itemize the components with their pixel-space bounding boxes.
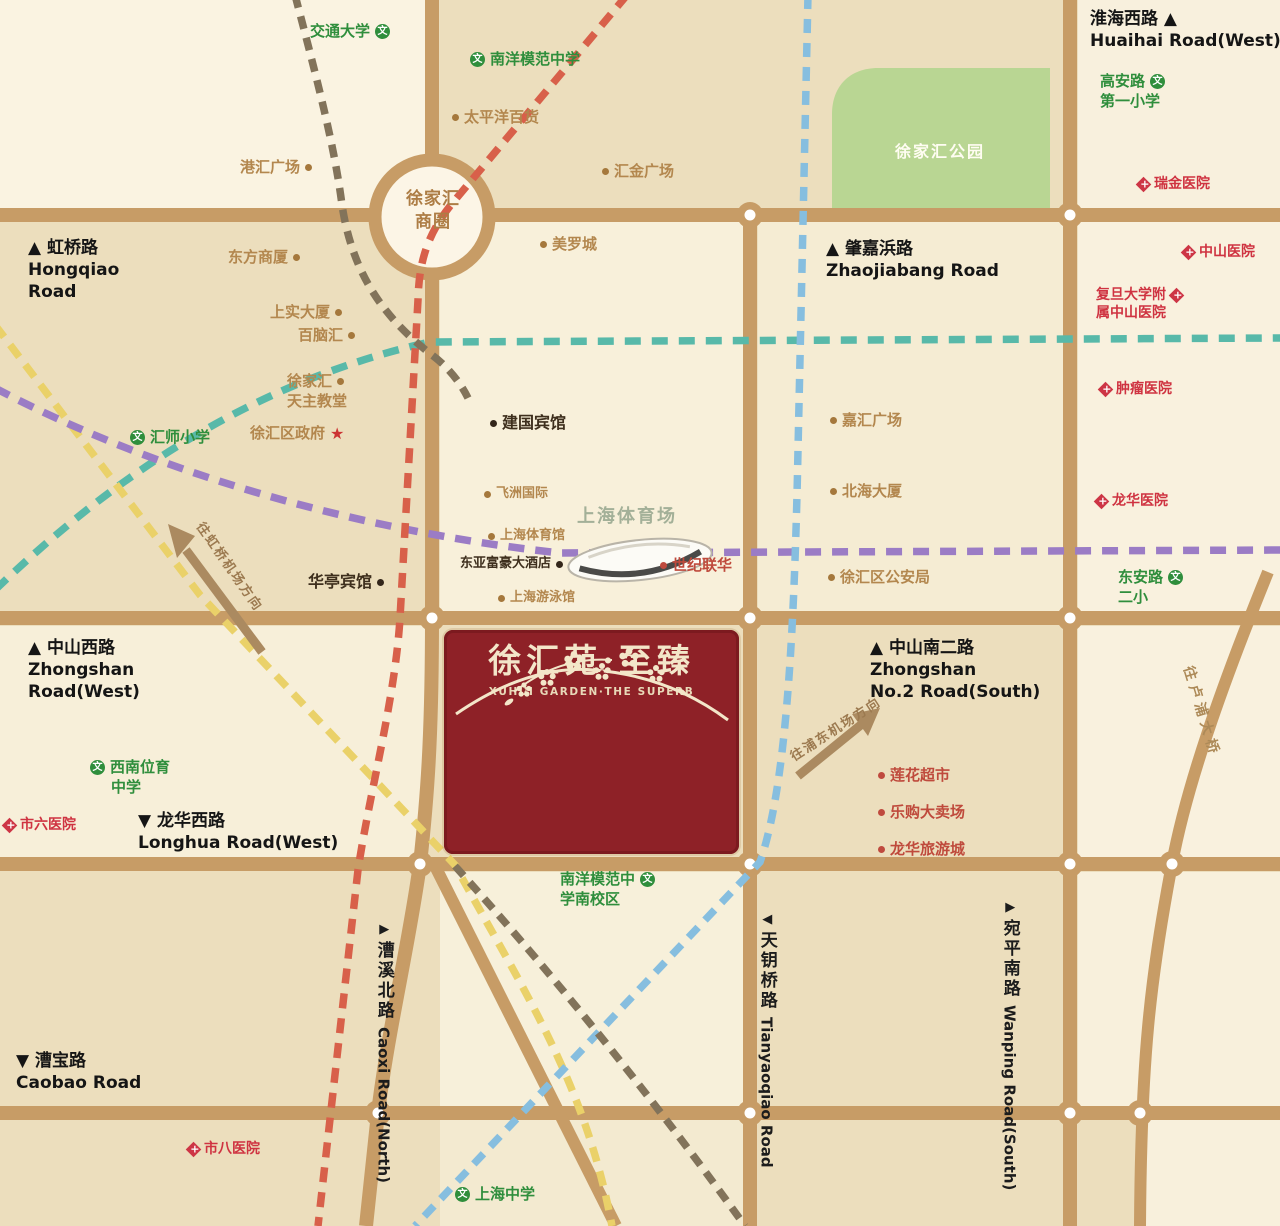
label-text: No.2 Road(South) [870,681,1040,703]
location-map: 徐家汇商圈 徐家汇公园 徐汇苑·至臻 X [0,0,1280,1226]
road-name-cn: 宛平南路 [1000,915,1020,999]
poi-zhongshan-hospital: +中山医院 [1183,243,1255,261]
direction-to-pudong-airport: 往浦东机场方向 [788,695,885,766]
school-icon: 文 [640,872,655,887]
poi-gaoan-road-first-primary: 高安路文第一小学 [1100,72,1165,111]
poi-shanghai-high-school: 文上海中学 [455,1185,535,1205]
label-text: 港汇广场 [240,158,300,178]
label-text: 太平洋百货 [464,108,539,128]
road-caoxi-north: ▶漕溪北路Caoxi Road(North) [374,922,393,1183]
label-text: Road [28,281,76,303]
poi-fudan-zhongshan-hospital: 复旦大学附+属中山医院 [1096,286,1182,322]
label-text: 市八医院 [204,1140,260,1158]
label-text: 中山医院 [1199,243,1255,261]
poi-dot-icon [377,579,384,586]
label-text: 中学 [111,778,141,798]
poi-dot-icon [602,168,609,175]
label-text: ▲ 肇嘉浜路 [826,238,913,260]
poi-cancer-hospital: +肿瘤医院 [1100,380,1172,398]
hospital-icon: + [2,817,18,833]
poi-jianguo-hotel: 建国宾馆 [490,413,566,434]
poi-dongfang-shopping-center: 东方商厦 [228,248,300,268]
label-text: 龙华医院 [1112,492,1168,510]
label-text: 天主教堂 [287,392,347,412]
label-text: 学南校区 [560,890,620,910]
poi-xinanweiyu-school: 文西南位育中学 [90,758,170,797]
label-text: 莲花超市 [890,766,950,786]
direction-to-lupu-bridge: 往卢浦大桥 [1179,664,1224,760]
road-direction-triangle-icon: ▶ [1003,900,1018,915]
label-text: 龙华旅游城 [890,840,965,860]
label-text: 汇金广场 [614,162,674,182]
label-text: 高安路 [1100,72,1145,92]
road-direction-triangle-icon: ▶ [377,922,392,937]
label-text: 华亭宾馆 [308,572,372,593]
road-tianyaoqiao: ◀天钥桥路Tianyaoqiao Road [757,912,776,1168]
label-text: 西南位育 [110,758,170,778]
road-hongqiao: ▲ 虹桥路HongqiaoRoad [28,237,119,303]
label-text: 交通大学 [310,22,370,42]
poi-nanyang-model-south-campus: 南洋模范中文学南校区 [560,870,655,909]
poi-xuhui-police-bureau: 徐汇区公安局 [828,568,930,588]
label-text: 建国宾馆 [502,413,566,434]
map-labels-layer: 交通大学文文南洋模范中学太平洋百货港汇广场汇金广场淮海西路 ▲Huaihai R… [0,0,1280,1226]
poi-beihai-tower: 北海大厦 [830,482,902,502]
poi-dot-icon [830,417,837,424]
poi-dot-icon [660,562,667,569]
road-caobao: ▼ 漕宝路Caobao Road [16,1050,141,1094]
poi-dot-icon [878,809,885,816]
hospital-icon: + [1098,381,1114,397]
label-text: 徐汇区公安局 [840,568,930,588]
label-text: ▲ 中山西路 [28,637,115,659]
road-name-cn: 天钥桥路 [757,927,777,1011]
label-text: Zhaojiabang Road [826,260,999,282]
poi-huating-hotel: 华亭宾馆 [308,572,384,593]
direction-to-hongqiao-airport: 往虹桥机场方向 [191,520,265,616]
label-text: Hongqiao [28,259,119,281]
poi-huishi-primary: 文汇师小学 [130,428,210,448]
label-text: ▲ 中山南二路 [870,637,974,659]
poi-dot-icon [488,533,495,540]
label-text: 南洋模范中学 [490,50,580,70]
label-text: 淮海西路 ▲ [1090,8,1177,30]
label-text: 北海大厦 [842,482,902,502]
label-text: 东安路 [1118,568,1163,588]
label-text: Road(West) [28,681,140,703]
hospital-icon: + [1181,244,1197,260]
poi-century-lianhua: 世纪联华 [660,556,732,576]
hospital-icon: + [1169,287,1185,303]
poi-dongan-road-second-primary: 东安路文二小 [1118,568,1183,607]
poi-bainaohui: 百脑汇 [298,326,355,346]
label-text: Longhua Road(West) [138,832,338,854]
poi-nanyang-model-school: 文南洋模范中学 [470,50,580,70]
poi-shanghai-natatorium: 上海游泳馆 [498,590,575,607]
poi-dot-icon [293,254,300,261]
poi-xujiahui-cathedral: 徐家汇天主教堂 [287,372,347,411]
label-text: 南洋模范中 [560,870,635,890]
label-text: 市六医院 [20,816,76,834]
label-text: ▼ 漕宝路 [16,1050,86,1072]
poi-dot-icon [348,332,355,339]
label-text: 汇师小学 [150,428,210,448]
road-direction-triangle-icon: ◀ [760,912,775,927]
label-text: ▼ 龙华西路 [138,810,225,832]
government-star-icon: ★ [330,426,344,442]
poi-shangshi-tower: 上实大厦 [270,303,342,323]
label-text: 上实大厦 [270,303,330,323]
school-icon: 文 [375,24,390,39]
hospital-icon: + [186,1141,202,1157]
label-text: 东亚富豪大酒店 [460,556,551,573]
poi-dot-icon [878,846,885,853]
school-icon: 文 [455,1187,470,1202]
label-text: 世纪联华 [672,556,732,576]
label-text: 徐家汇 [287,372,332,392]
road-name-en: Wanping Road(South) [1001,999,1019,1190]
poi-shanghai-gymnasium: 上海体育馆 [488,528,565,545]
label-text: 徐汇区政府 [250,424,325,444]
poi-legou-hypermarket: 乐购大卖场 [878,803,965,823]
poi-dot-icon [337,378,344,385]
poi-metro-city: 美罗城 [540,235,597,255]
road-zhongshan-west: ▲ 中山西路ZhongshanRoad(West) [28,637,140,703]
label-text: 上海中学 [475,1185,535,1205]
road-name-cn: 漕溪北路 [374,937,394,1021]
school-icon: 文 [90,760,105,775]
poi-dot-icon [540,241,547,248]
poi-lianhua-supermarket: 莲花超市 [878,766,950,786]
road-wanping-south: ▶宛平南路Wanping Road(South) [1000,900,1019,1190]
poi-longhua-tourist-city: 龙华旅游城 [878,840,965,860]
school-icon: 文 [470,52,485,67]
road-name-en: Caoxi Road(North) [375,1021,393,1183]
label-text: 复旦大学附 [1096,286,1166,304]
poi-dot-icon [490,420,497,427]
label-text: 往浦东机场方向 [788,695,885,766]
poi-ruijin-hospital: +瑞金医院 [1138,175,1210,193]
poi-eighth-people-hospital: +市八医院 [188,1140,260,1158]
poi-dongya-richgate-hotel: 东亚富豪大酒店 [460,556,563,573]
poi-ganghui-plaza: 港汇广场 [240,158,312,178]
label-text: Huaihai Road(West) [1090,30,1280,52]
label-text: 上海体育馆 [500,528,565,545]
label-text: 美罗城 [552,235,597,255]
label-text: 嘉汇广场 [842,411,902,431]
poi-dot-icon [335,309,342,316]
poi-dot-icon [830,488,837,495]
label-text: 上海体育场 [577,505,677,528]
label-text: Caobao Road [16,1072,141,1094]
label-text: 东方商厦 [228,248,288,268]
school-icon: 文 [1168,570,1183,585]
poi-huijin-plaza: 汇金广场 [602,162,674,182]
label-text: ▲ 虹桥路 [28,237,98,259]
poi-pacific-department-store: 太平洋百货 [452,108,539,128]
poi-dot-icon [484,491,491,498]
poi-longhua-hospital: +龙华医院 [1096,492,1168,510]
hospital-icon: + [1094,493,1110,509]
road-name-en: Tianyaoqiao Road [758,1011,776,1168]
road-huaihai-west: 淮海西路 ▲Huaihai Road(West) [1090,8,1280,52]
poi-jiahui-plaza: 嘉汇广场 [830,411,902,431]
label-text: Zhongshan [28,659,134,681]
poi-jiaotong-university: 交通大学文 [310,22,390,42]
poi-dot-icon [828,574,835,581]
poi-sixth-people-hospital: +市六医院 [4,816,76,834]
label-text: 乐购大卖场 [890,803,965,823]
poi-dot-icon [556,561,563,568]
label-text: 属中山医院 [1096,304,1166,322]
label-text: 二小 [1118,588,1148,608]
label-text: 往虹桥机场方向 [191,520,265,616]
poi-dot-icon [452,114,459,121]
label-text: Zhongshan [870,659,976,681]
road-longhua-west: ▼ 龙华西路Longhua Road(West) [138,810,338,854]
label-text: 上海游泳馆 [510,590,575,607]
label-text: 往卢浦大桥 [1179,664,1224,760]
poi-shanghai-stadium: 上海体育场 [577,505,677,528]
label-text: 飞洲国际 [496,486,548,503]
road-zhongshan-no2-south: ▲ 中山南二路ZhongshanNo.2 Road(South) [870,637,1040,703]
poi-dot-icon [498,595,505,602]
poi-xuhui-district-government: 徐汇区政府★ [250,424,344,444]
label-text: 百脑汇 [298,326,343,346]
poi-dot-icon [305,164,312,171]
label-text: 第一小学 [1100,92,1160,112]
label-text: 肿瘤医院 [1116,380,1172,398]
school-icon: 文 [130,430,145,445]
poi-feizhou-international: 飞洲国际 [484,486,548,503]
road-zhaojiabang: ▲ 肇嘉浜路Zhaojiabang Road [826,238,999,282]
school-icon: 文 [1150,74,1165,89]
label-text: 瑞金医院 [1154,175,1210,193]
poi-dot-icon [878,772,885,779]
hospital-icon: + [1136,176,1152,192]
